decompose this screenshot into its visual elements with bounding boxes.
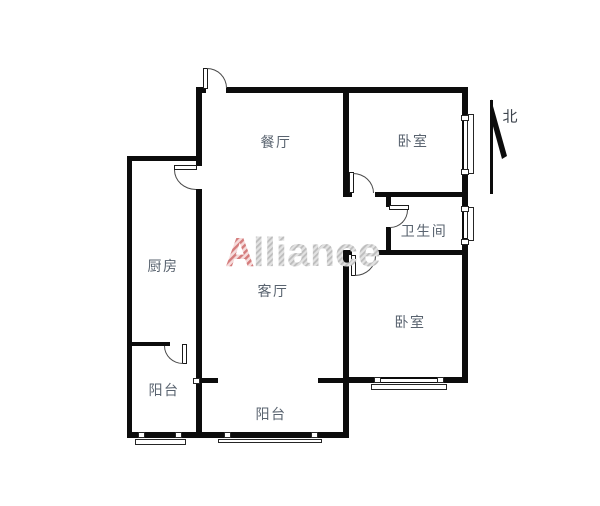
watermark-accent-letter: A	[225, 229, 255, 275]
wall-dining-west-lower	[196, 189, 202, 438]
watermark-rest: lliance	[253, 229, 381, 275]
bedroom2-window-marker-right	[437, 377, 444, 383]
room-label-bathroom: 卫生间	[401, 221, 448, 241]
wall-junction-marker	[193, 378, 200, 384]
balcony-south-window-sill	[218, 439, 322, 443]
room-label-living: 客厅	[258, 281, 289, 301]
room-label-balcony-south: 阳台	[256, 404, 287, 424]
watermark-logo: A lliance	[220, 226, 390, 278]
wall-west	[127, 156, 132, 438]
bedroom1-window-marker-bottom	[461, 169, 469, 175]
wall-balcony-stub-west	[199, 378, 218, 383]
room-label-balcony-west: 阳台	[149, 380, 180, 400]
wall-dining-west-upper	[196, 87, 202, 166]
bathroom-window-sill	[467, 207, 474, 241]
bedroom1-door-arc	[353, 173, 374, 193]
wall-balcony-stub-east	[318, 378, 345, 383]
south-window-marker-2	[175, 432, 182, 438]
bathroom-window-marker-top	[461, 206, 469, 212]
bedroom1-window-sill	[467, 114, 474, 174]
floorplan-canvas: 餐厅 卧室 卫生间 厨房 客厅 卧室 阳台 阳台 北 A lliance	[0, 0, 600, 506]
entry-door-arc	[207, 68, 227, 88]
room-label-kitchen: 厨房	[148, 256, 179, 276]
south-window-marker-3	[224, 432, 231, 438]
wall-kitchen-north	[127, 156, 202, 161]
kitchen-balcony-door-arc	[164, 346, 183, 364]
wall-hall-south-right	[377, 250, 468, 255]
bedroom2-window-sill	[371, 384, 447, 390]
balcony-west-window-sill	[135, 439, 186, 445]
south-window-marker-4	[311, 432, 318, 438]
bedroom1-window-marker-top	[461, 115, 469, 121]
kitchen-door-arc	[174, 170, 196, 190]
bedroom2-window-core	[380, 379, 437, 382]
wall-bedroom2-west	[343, 253, 349, 438]
room-label-dining: 餐厅	[261, 132, 292, 152]
north-label: 北	[502, 106, 517, 127]
bedroom2-window-marker-left	[374, 377, 381, 383]
room-label-bedroom-south: 卧室	[395, 312, 426, 332]
south-window-marker-1	[138, 432, 145, 438]
room-label-bedroom-north: 卧室	[398, 131, 429, 151]
bathroom-window-marker-bottom	[461, 239, 469, 245]
